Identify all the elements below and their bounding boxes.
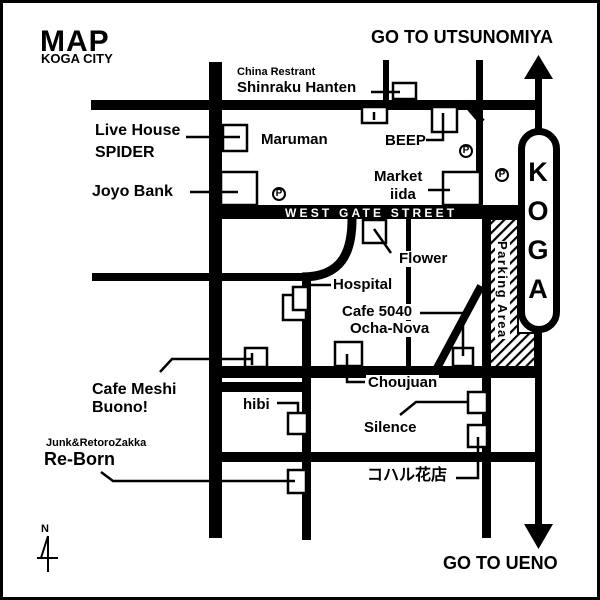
parking-area-label: Parking Area (495, 241, 510, 339)
arrow-up-icon (524, 55, 553, 79)
leader-hibi (277, 403, 298, 412)
parking-p-icon: P (495, 168, 509, 182)
leader-reborn (101, 472, 295, 481)
label-hibi: hibi (243, 397, 270, 413)
label-cafe-5040: Cafe 5040 (340, 304, 414, 320)
label-buono: Buono! (92, 400, 148, 417)
building-hibi (288, 413, 307, 434)
label-west-gate-street: WEST GATE STREET (285, 207, 457, 220)
label-china-restrant: China Restrant (237, 67, 315, 79)
label-choujuan: Choujuan (366, 375, 439, 391)
label-flower: Flower (397, 251, 449, 267)
label-spider: SPIDER (95, 145, 155, 162)
label-maruman: Maruman (261, 132, 328, 148)
label-market: Market (374, 169, 422, 185)
label-cafe-meshi: Cafe Meshi (92, 382, 176, 399)
destination-south: GO TO UENO (443, 554, 558, 573)
building-market-iida (443, 172, 480, 205)
building-beep (432, 107, 457, 132)
leader-silence (400, 402, 468, 415)
label-shinraku-hanten: Shinraku Hanten (237, 80, 356, 96)
building-hospital-b (293, 287, 308, 310)
north-arrow-icon (37, 536, 58, 572)
label-koharu: コハル花店 (367, 468, 447, 485)
road-curve (302, 219, 352, 277)
building-cafe-meshi-buono (245, 348, 267, 367)
road-horizontal-short (222, 382, 306, 392)
station-name: KOGA (522, 157, 557, 313)
label-iida: iida (390, 187, 416, 203)
parking-p-icon: P (272, 187, 286, 201)
label-beep: BEEP (385, 133, 426, 149)
label-hospital: Hospital (333, 277, 392, 293)
road-vertical-west (209, 62, 222, 538)
building-silence (468, 392, 487, 413)
map-subtitle: KOGA CITY (41, 52, 113, 66)
parking-p-icon: P (459, 144, 473, 158)
label-junk-retoro-zakka: Junk&RetoroZakka (46, 438, 146, 450)
compass-north-label: N (41, 524, 49, 536)
road-horizontal-south (209, 452, 542, 462)
koga-city-map: MAP KOGA CITY GO TO UTSUNOMIYA GO TO UEN… (0, 0, 600, 600)
arrow-down-icon (524, 524, 553, 549)
destination-north: GO TO UTSUNOMIYA (371, 28, 553, 47)
label-joyo-bank: Joyo Bank (92, 184, 173, 201)
label-ocha-nova: Ocha-Nova (348, 321, 431, 337)
building-choujuan (335, 342, 362, 366)
label-silence: Silence (364, 420, 417, 436)
building-joyo-bank (221, 172, 257, 205)
label-reborn: Re-Born (44, 450, 115, 469)
label-live-house: Live House (95, 123, 180, 140)
